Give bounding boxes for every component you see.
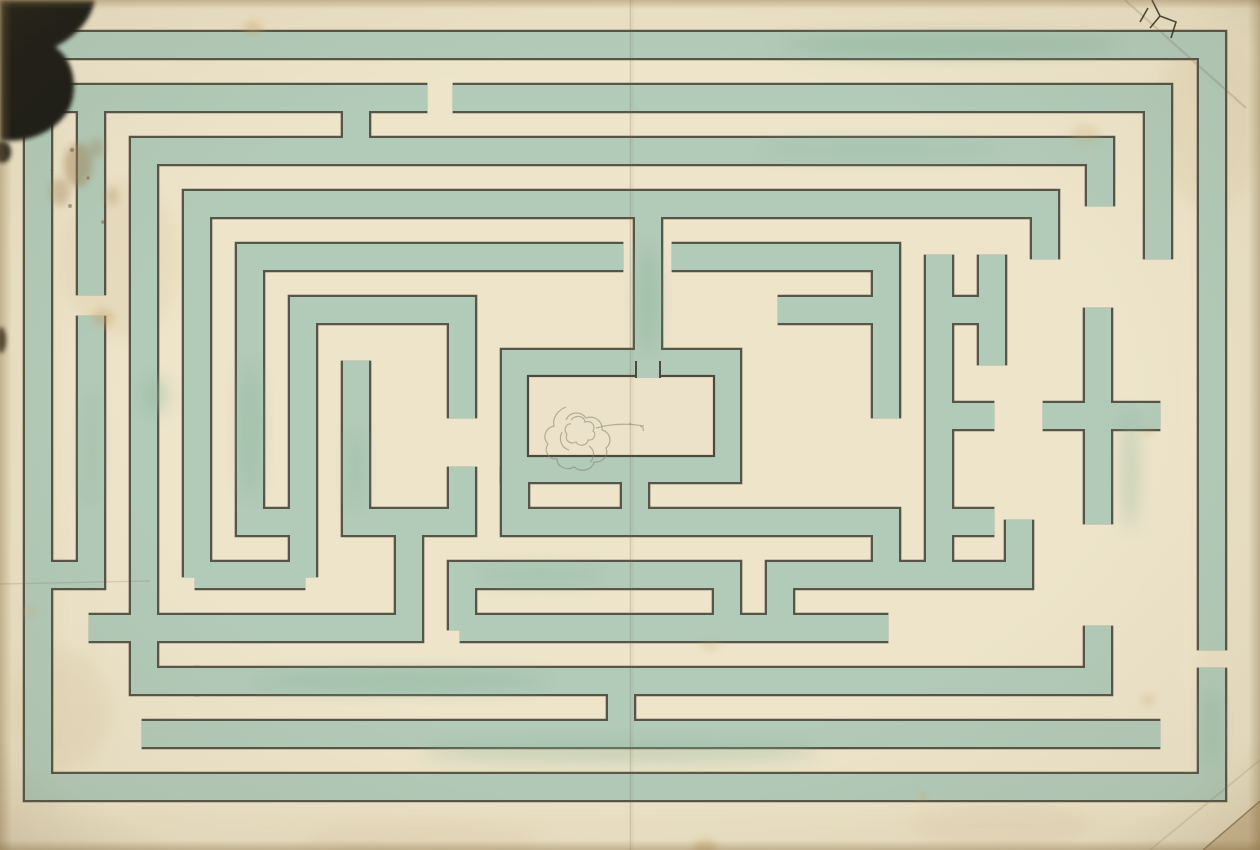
scanned-maze-artwork: [0, 0, 1260, 850]
paper-edge-shading: [0, 0, 1260, 850]
maze-plan-drawing: [0, 0, 1260, 850]
